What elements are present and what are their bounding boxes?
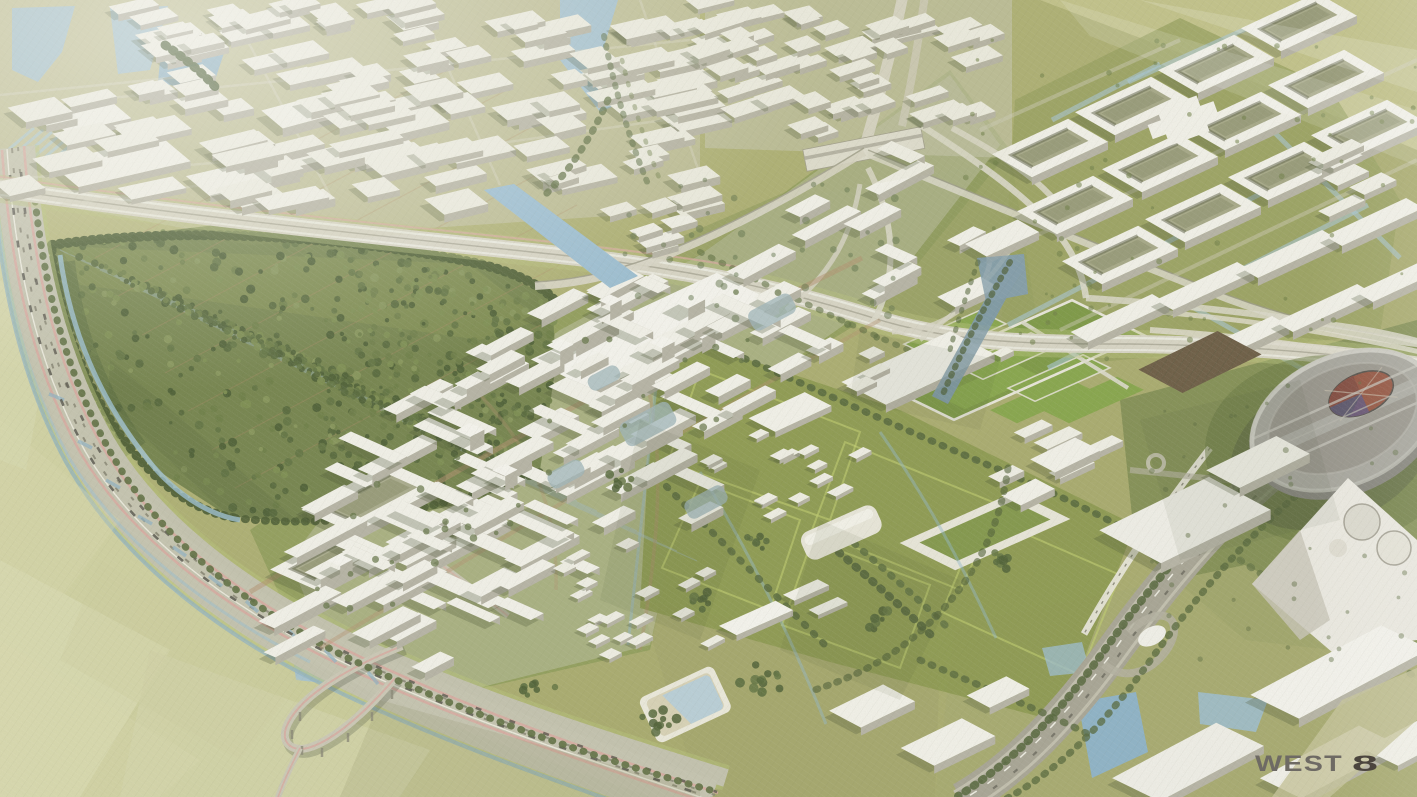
svg-text:WEST: WEST (1255, 751, 1343, 776)
svg-text:8: 8 (1352, 751, 1378, 776)
